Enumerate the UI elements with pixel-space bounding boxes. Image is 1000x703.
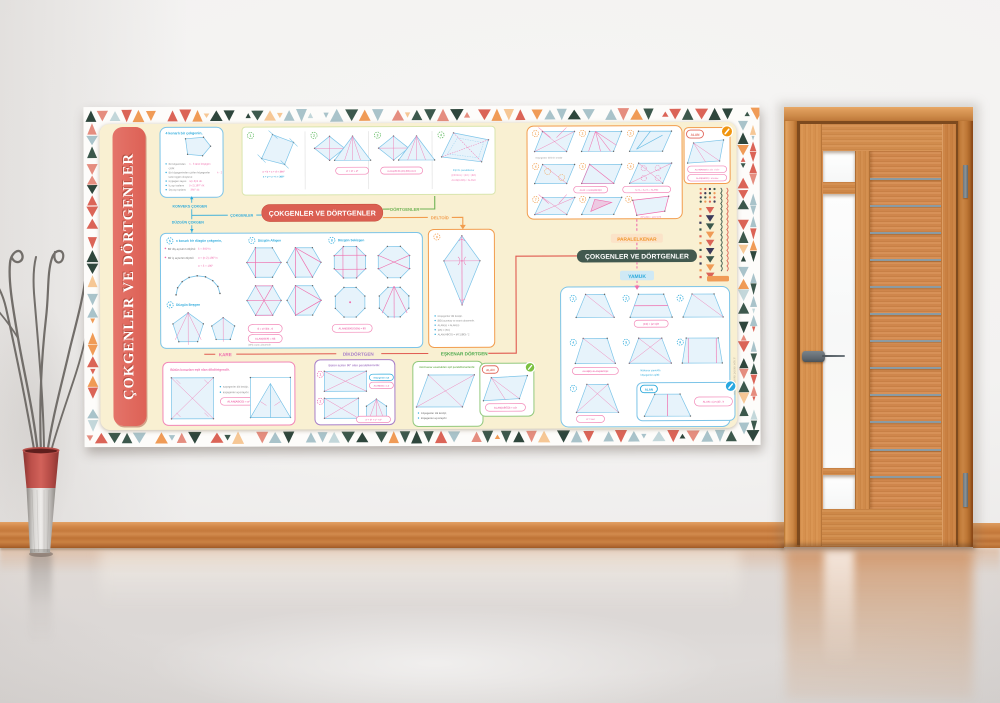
svg-text:DİKDÖRTGEN: DİKDÖRTGEN	[343, 351, 375, 357]
svg-text:KONVEKS ÇOKGEN: KONVEKS ÇOKGEN	[172, 204, 207, 208]
svg-text:YAMUK: YAMUK	[628, 274, 646, 280]
svg-text:KARE: KARE	[219, 352, 232, 357]
svg-text:ÇOKGENLER VE DÖRTGENLER: ÇOKGENLER VE DÖRTGENLER	[269, 208, 376, 217]
svg-text:ÇOKGENLER VE DÖRTGENLER: ÇOKGENLER VE DÖRTGENLER	[585, 251, 689, 260]
svg-text:DELTOİD: DELTOİD	[431, 215, 449, 220]
svg-text:DÖRTGENLER: DÖRTGENLER	[390, 207, 419, 212]
svg-text:ÇOKGENLER: ÇOKGENLER	[230, 214, 253, 218]
svg-text:DÜZGÜN ÇOKGEN: DÜZGÜN ÇOKGEN	[172, 219, 205, 224]
svg-text:EŞKENAR DÖRTGEN: EŞKENAR DÖRTGEN	[441, 350, 488, 356]
svg-text:PARALELKENAR: PARALELKENAR	[617, 237, 657, 243]
